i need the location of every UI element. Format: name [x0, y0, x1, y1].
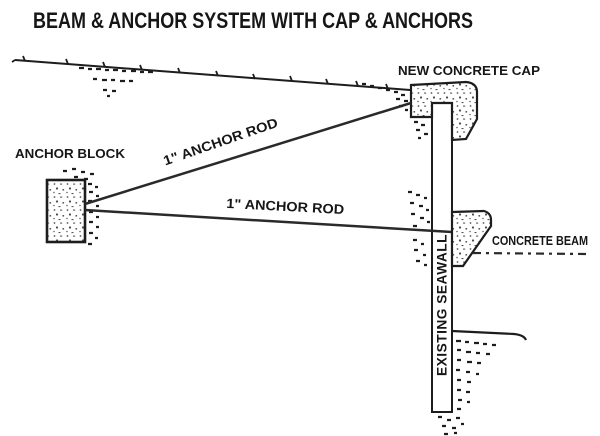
beam-anchor-diagram: BEAM & ANCHOR SYSTEM WITH CAP & ANCHORS … [0, 0, 600, 436]
diagram-page: BEAM & ANCHOR SYSTEM WITH CAP & ANCHORS … [0, 0, 600, 436]
soil-marks-top-left [79, 68, 153, 96]
concrete-beam-label: CONCRETE BEAM [492, 234, 588, 248]
anchor-block: ANCHOR BLOCK [15, 146, 126, 242]
new-concrete-cap: NEW CONCRETE CAP [398, 63, 540, 140]
concrete-beam: CONCRETE BEAM [452, 211, 588, 266]
anchor-block-label: ANCHOR BLOCK [15, 146, 126, 161]
right-ground-line [452, 331, 526, 340]
diagram-title: BEAM & ANCHOR SYSTEM WITH CAP & ANCHORS [33, 8, 473, 33]
existing-seawall: EXISTING SEAWALL [432, 102, 452, 412]
lower-anchor-rod: 1" ANCHOR ROD [85, 196, 452, 232]
existing-seawall-label: EXISTING SEAWALL [435, 234, 450, 376]
lower-anchor-rod-label: 1" ANCHOR ROD [226, 196, 345, 217]
upper-anchor-rod: 1" ANCHOR ROD [85, 103, 411, 204]
top-ground-line [12, 56, 410, 90]
water-line [473, 253, 587, 254]
upper-anchor-rod-label: 1" ANCHOR ROD [161, 115, 280, 168]
new-concrete-cap-label: NEW CONCRETE CAP [398, 63, 540, 78]
